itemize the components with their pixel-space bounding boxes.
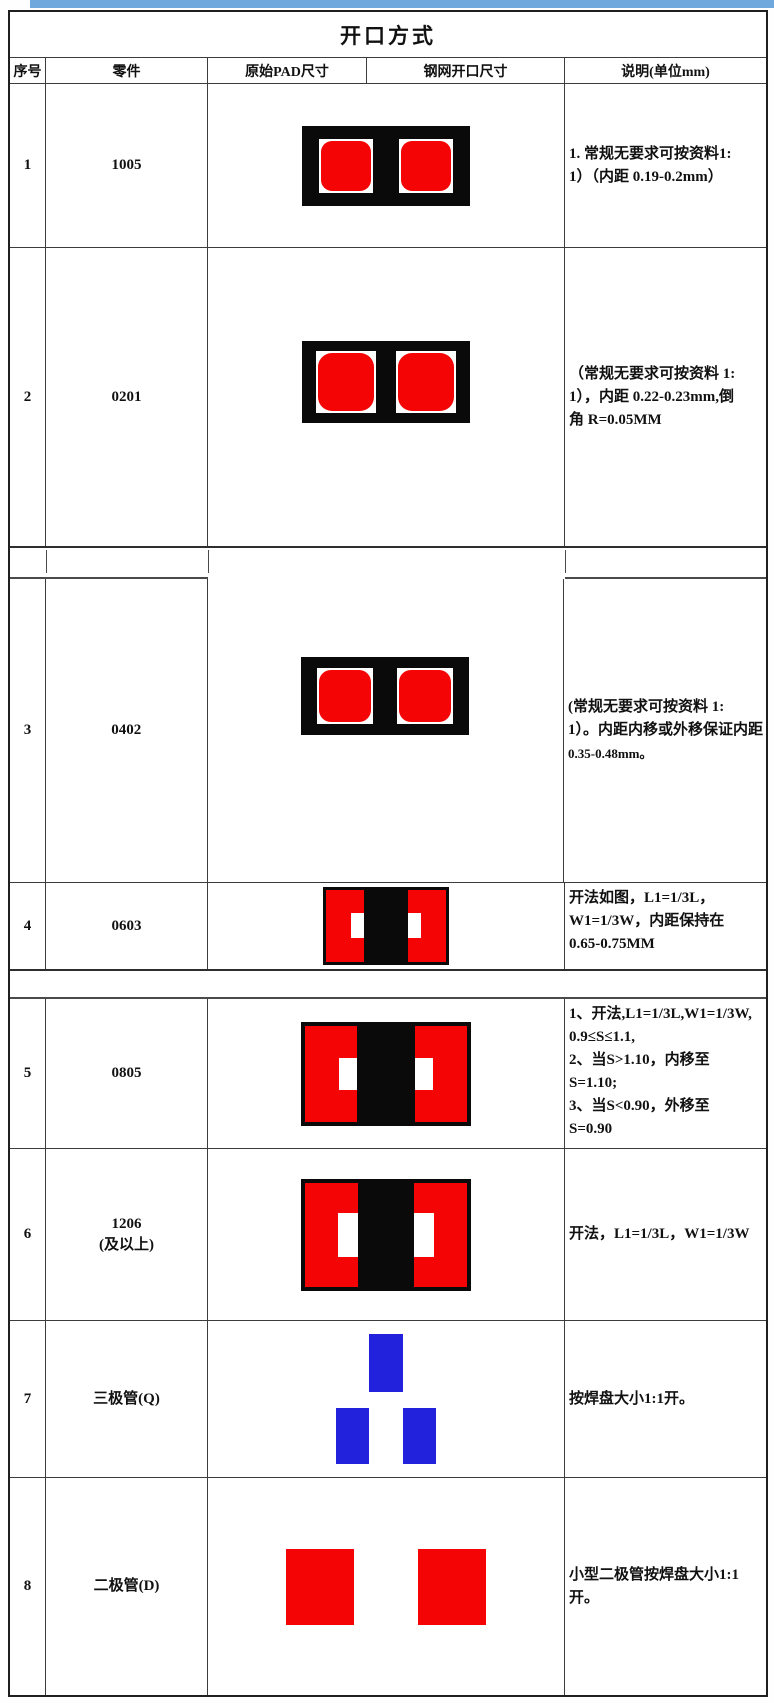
notes-cell: 按焊盘大小1:1开。 [565,1321,766,1477]
top-blue-bar [30,0,774,8]
row-index: 5 [10,999,46,1148]
part-label: 二极管(D) [46,1478,208,1695]
row-index: 8 [10,1478,46,1695]
pad-drawing-1005 [302,126,470,206]
aperture-spec-table: 开口方式 序号 零件 原始PAD尺寸 钢网开口尺寸 说明(单位mm) 1 100… [8,10,768,1697]
part-label: 0805 [46,999,208,1148]
pad-drawing-1206 [301,1179,471,1291]
table-row: 2 0201 （常规无要求可按资料 1: 1），内距 0.22-0.23mm,倒… [10,248,766,548]
pad-graphic-cell [208,999,565,1148]
pad-graphic-cell [208,1321,565,1477]
pad-drawing-0805 [301,1022,471,1126]
table-row: 1 1005 1. 常规无要求可按资料1: 1）（内距 0.19-0.2mm） [10,84,766,248]
row-index: 4 [10,883,46,969]
scanned-spec-page: 开口方式 序号 零件 原始PAD尺寸 钢网开口尺寸 说明(单位mm) 1 100… [0,0,774,1703]
col-header-stencil-open: 钢网开口尺寸 [367,58,565,83]
notes-cell: 开法如图，L1=1/3L， W1=1/3W，内距保持在 0.65-0.75MM [565,883,766,969]
notes-cell: 1. 常规无要求可按资料1: 1）（内距 0.19-0.2mm） [565,84,766,247]
table-row: 4 0603 开法如图，L1=1/3L， W1=1/3W，内距保持在 0.65-… [10,883,766,971]
row-index: 3 [10,579,46,882]
pad-graphic-cell [208,883,565,969]
pad-drawing-0201 [302,341,470,423]
notes-cell: （常规无要求可按资料 1: 1），内距 0.22-0.23mm,倒 角 R=0.… [565,248,766,546]
col-header-original-pad: 原始PAD尺寸 [208,58,367,83]
pad-drawing-0402 [301,657,469,735]
part-label: 0402 [46,579,208,882]
part-label: 1206 (及以上) [46,1149,208,1320]
page-break-seam [10,548,766,579]
notes-cell: 小型二极管按焊盘大小1:1 开。 [565,1478,766,1695]
table-header-row: 序号 零件 原始PAD尺寸 钢网开口尺寸 说明(单位mm) [10,58,766,84]
pad-graphic-cell [208,84,565,247]
part-label: 0603 [46,883,208,969]
pad-drawing-transistor [336,1334,436,1464]
row-index: 2 [10,248,46,546]
notes-cell: 1、开法,L1=1/3L,W1=1/3W, 0.9≤S≤1.1, 2、当S>1.… [565,999,766,1148]
notes-cell: 开法，L1=1/3L，W1=1/3W [565,1149,766,1320]
table-row: 6 1206 (及以上) 开法，L1=1/3L，W1=1/3W [10,1149,766,1321]
row-index: 7 [10,1321,46,1477]
part-label: 三极管(Q) [46,1321,208,1477]
pad-drawing-diode [286,1549,486,1625]
pad-graphic-cell [208,579,564,882]
pad-graphic-cell [208,248,565,546]
col-header-index: 序号 [10,58,46,83]
table-row: 7 三极管(Q) 按焊盘大小1:1开。 [10,1321,766,1478]
col-header-part: 零件 [46,58,208,83]
pad-graphic-cell [208,1478,565,1695]
notes-cell: (常规无要求可按资料 1: 1）。内距内移或外移保证内距 0.35-0.48mm… [564,579,766,882]
row-index: 6 [10,1149,46,1320]
part-label: 0201 [46,248,208,546]
part-label: 1005 [46,84,208,247]
col-header-notes: 说明(单位mm) [565,58,766,83]
table-row: 3 0402 (常规无要求可按资料 1: 1）。内距内移或外移保证内距 0.35… [10,579,766,883]
row-index: 1 [10,84,46,247]
page-break-seam [10,971,766,999]
table-row: 8 二极管(D) 小型二极管按焊盘大小1:1 开。 [10,1478,766,1695]
pad-drawing-0603 [323,887,449,965]
pad-graphic-cell [208,1149,565,1320]
table-row: 5 0805 1、开法,L1=1/3L,W1=1/3W, 0.9≤S≤1.1, … [10,999,766,1149]
page-title: 开口方式 [10,12,766,58]
